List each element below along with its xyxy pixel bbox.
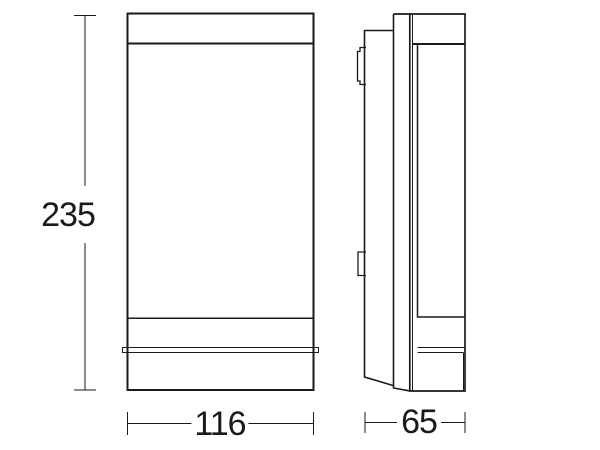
height-dimension-label: 235	[38, 198, 98, 232]
side-wall-plate	[365, 31, 394, 386]
side-view	[358, 14, 466, 391]
technical-drawing-canvas: 235 116 65	[0, 0, 600, 450]
front-view	[123, 14, 319, 391]
side-front-strip	[394, 14, 410, 391]
front-body-outline	[128, 14, 314, 391]
side-recess-panel	[418, 44, 466, 317]
depth-dimension-label: 65	[398, 405, 440, 439]
width-dimension-label: 116	[191, 407, 248, 441]
side-body-outline	[394, 14, 466, 391]
